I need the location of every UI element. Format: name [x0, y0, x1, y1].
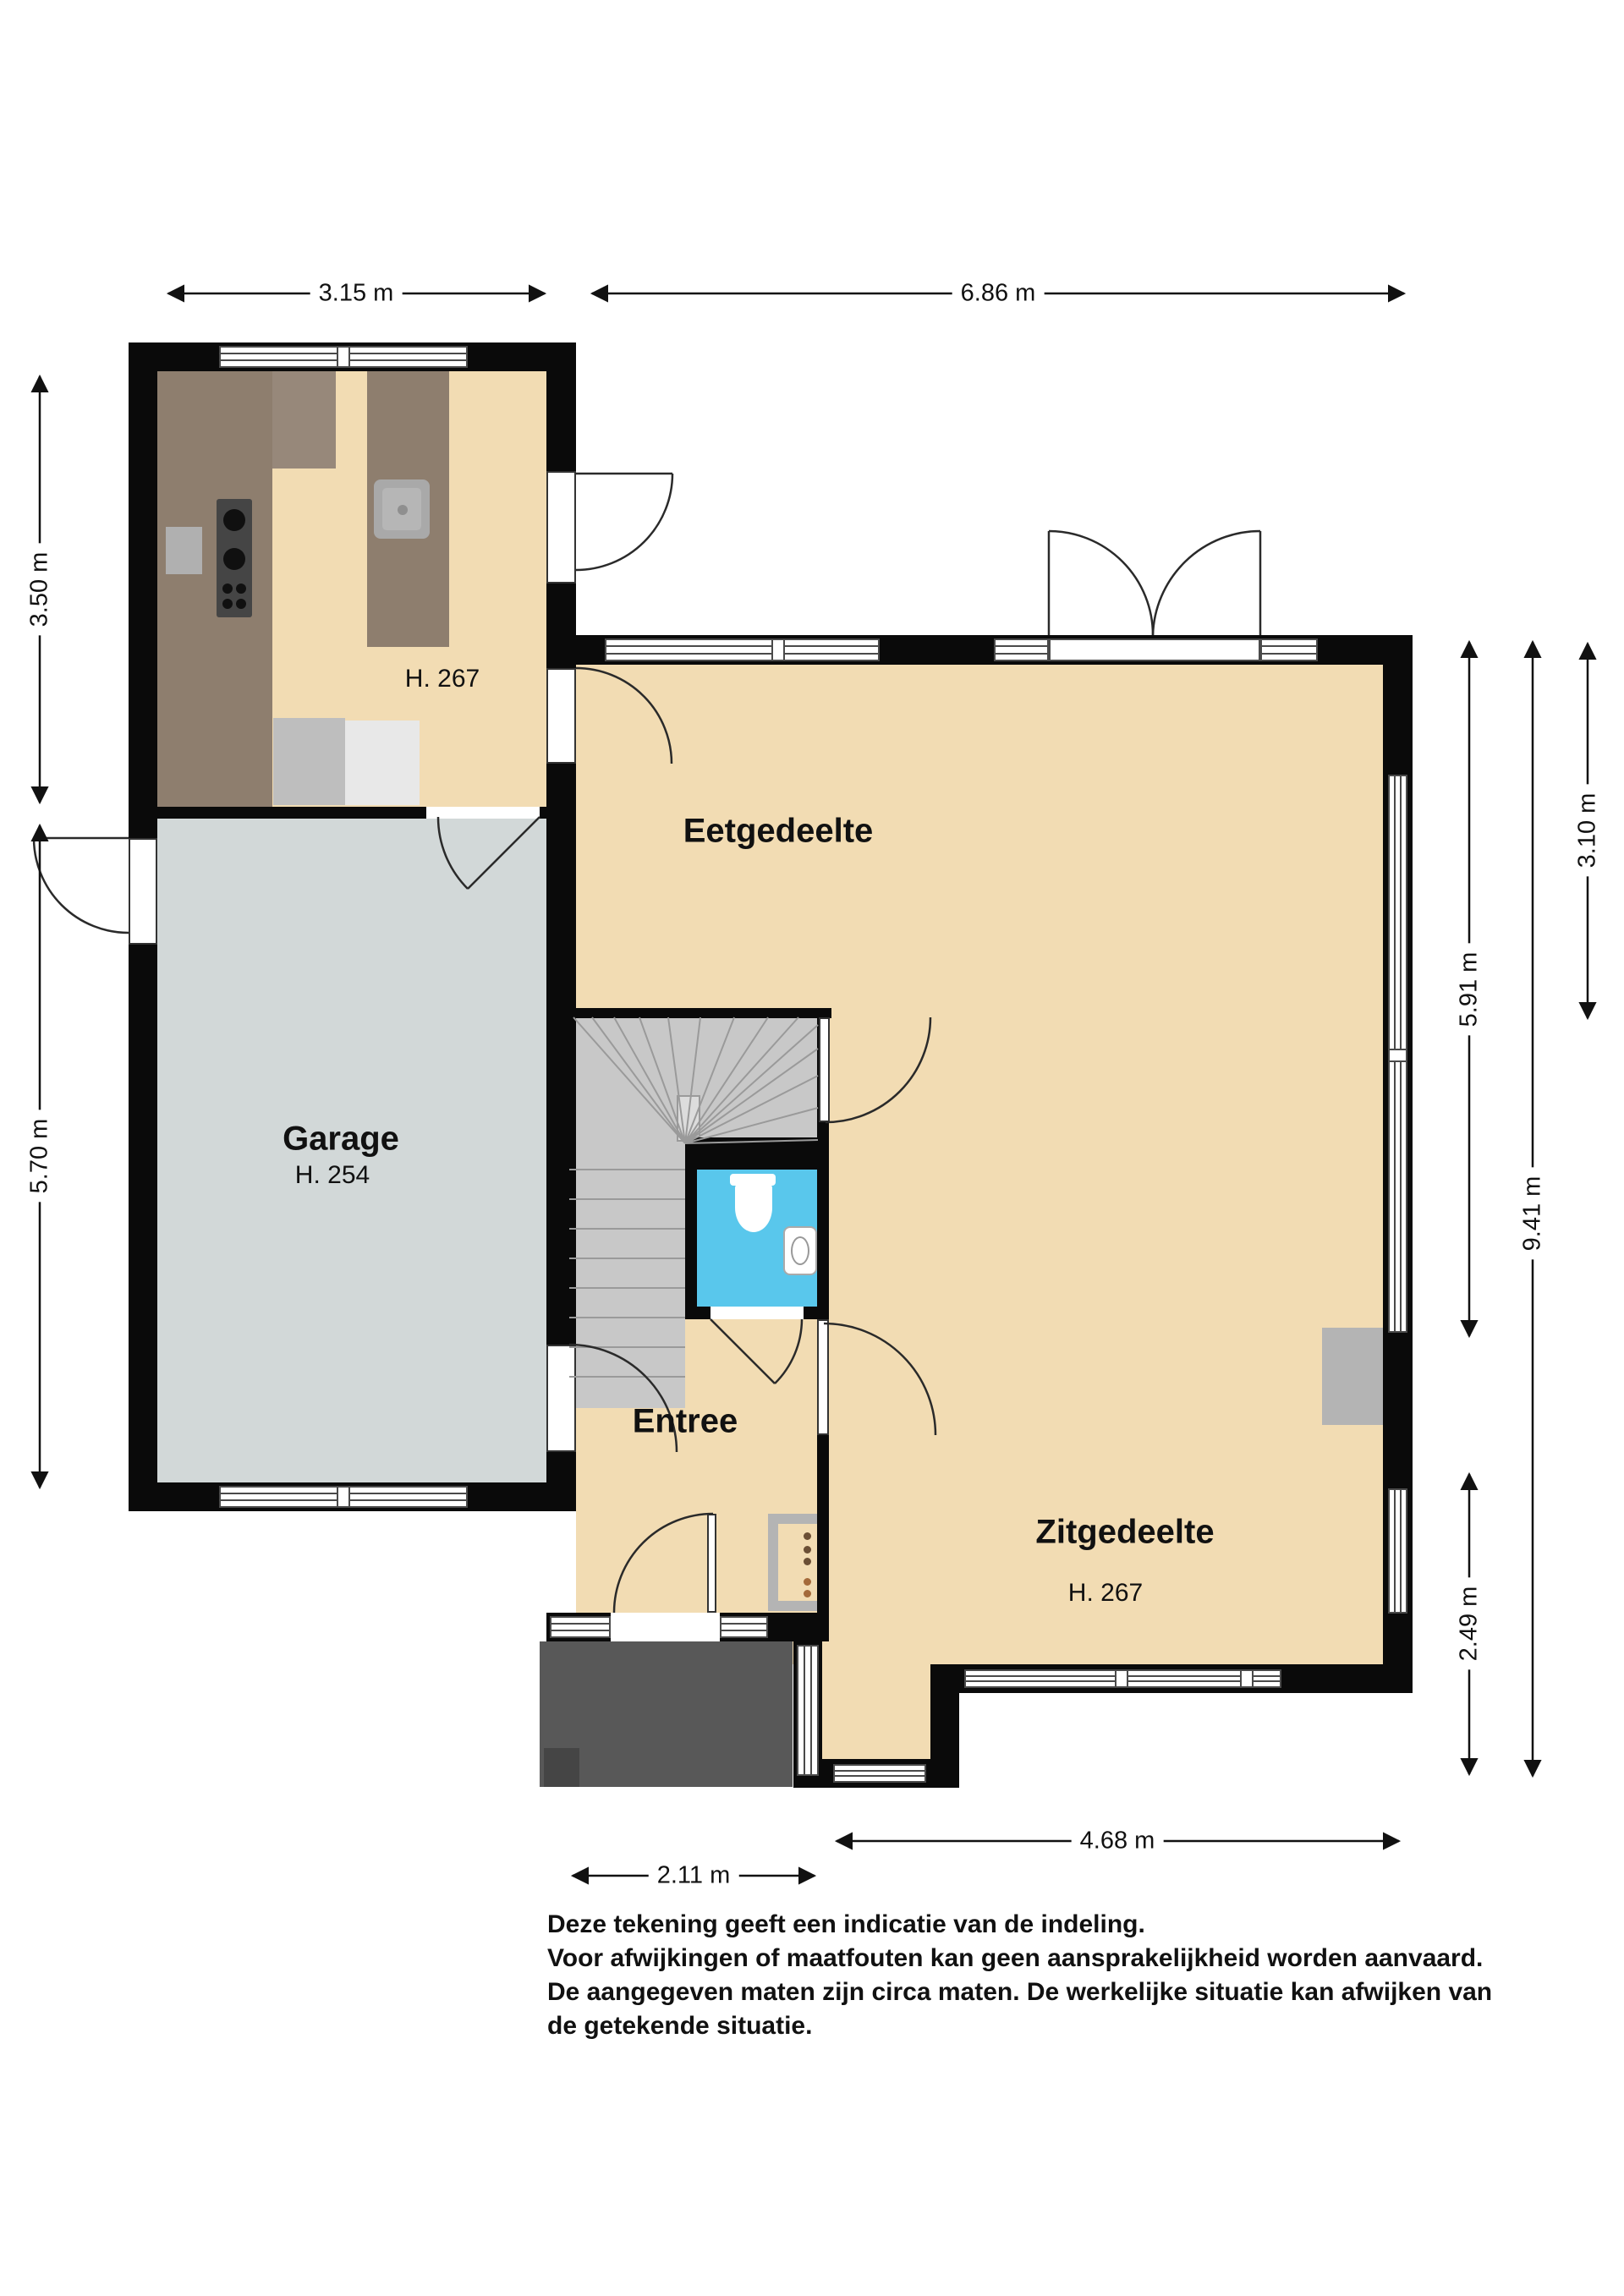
- floor-plan: 3.15 m 6.86 m 3.50 m 5.70 m 5.91 m 9.41 …: [0, 0, 1624, 2296]
- toilet-door-opening: [710, 1307, 804, 1319]
- meter-cupboard: [768, 1514, 817, 1611]
- dim-label-bottom-right: 4.68 m: [1072, 1826, 1164, 1857]
- dim-label-right-inner: 5.91 m: [1454, 944, 1485, 1036]
- dim-label-top-right: 6.86 m: [952, 278, 1045, 310]
- stove: [217, 499, 252, 617]
- window-dining-top-3: [1260, 638, 1318, 661]
- stairs-newel: [677, 1095, 700, 1142]
- wall-entree-right: [817, 1435, 829, 1613]
- kitchen-exterior-door-arc: [576, 474, 672, 570]
- kitchen-counter-left: [157, 371, 272, 807]
- dim-label-right-outer: 3.10 m: [1572, 785, 1604, 877]
- window-entree-bottom-2: [720, 1616, 768, 1638]
- kitchen-side-table: [166, 527, 202, 574]
- dim-label-top-left: 3.15 m: [310, 278, 403, 310]
- stairs-flight: [569, 1140, 685, 1408]
- disclaimer-text: Deze tekening geeft een indicatie van de…: [547, 1908, 1495, 2043]
- garage-side-door-opening: [129, 838, 157, 945]
- kitchen-dining-door-opening: [546, 668, 576, 764]
- dining-room-label: Eetgedeelte: [683, 813, 874, 851]
- dim-label-right-lower: 2.49 m: [1454, 1578, 1485, 1670]
- kitchen-height-label: H. 267: [405, 665, 480, 693]
- window-right-sitting: [1388, 1488, 1407, 1614]
- porch-doormat: [544, 1748, 579, 1787]
- hall-door-leaf: [819, 1017, 830, 1122]
- disclaimer-line-1: Deze tekening geeft een indicatie van de…: [547, 1908, 1495, 1942]
- window-mullion: [337, 1486, 350, 1508]
- entree-sitting-door-leaf: [817, 1319, 829, 1435]
- wall-stairs-top: [546, 1008, 831, 1018]
- french-door-opening: [1049, 638, 1260, 661]
- window-entree-bottom-1: [550, 1616, 611, 1638]
- disclaimer-line-3: De aangegeven maten zijn circa maten. De…: [547, 1975, 1495, 2009]
- entree-label: Entree: [633, 1403, 738, 1441]
- garage-height-label: H. 254: [295, 1161, 370, 1190]
- window-mullion: [1115, 1669, 1128, 1688]
- kitchen-appliance-1: [273, 718, 345, 805]
- garage-side-door-arc: [34, 838, 129, 933]
- sitting-room-height-label: H. 267: [1068, 1579, 1143, 1608]
- dim-label-right-middle: 9.41 m: [1517, 1168, 1549, 1260]
- toilet-sink: [783, 1226, 817, 1275]
- radiator: [1322, 1328, 1383, 1425]
- disclaimer-line-2: Voor afwijkingen of maatfouten kan geen …: [547, 1942, 1495, 1975]
- french-door-arcs: [1049, 531, 1260, 635]
- window-mullion: [1240, 1669, 1254, 1688]
- front-door-leaf: [707, 1514, 716, 1613]
- window-mullion: [771, 638, 785, 661]
- toilet-bowl: [735, 1183, 772, 1232]
- front-door-opening: [611, 1613, 720, 1641]
- garage-entree-door-opening: [546, 1345, 576, 1452]
- kitchen-exterior-door-opening: [546, 471, 576, 584]
- disclaimer-line-4: de getekende situatie.: [547, 2009, 1495, 2043]
- island-sink: [374, 479, 430, 539]
- dim-label-left-upper: 3.50 m: [25, 544, 56, 636]
- kitchen-counter-top: [272, 371, 336, 469]
- window-mullion: [337, 346, 350, 368]
- kitchen-garage-door-opening: [426, 807, 540, 819]
- garage-label: Garage: [283, 1121, 399, 1159]
- sitting-room-label: Zitgedeelte: [1035, 1514, 1214, 1552]
- window-dining-top-2: [994, 638, 1049, 661]
- window-mullion: [1388, 1049, 1407, 1062]
- dim-label-bottom-left: 2.11 m: [649, 1860, 739, 1892]
- bay-floor: [822, 1641, 930, 1759]
- dim-label-left-lower: 5.70 m: [25, 1110, 56, 1203]
- window-bay-bottom: [833, 1764, 926, 1783]
- kitchen-appliance-2: [345, 721, 420, 805]
- window-bay-left: [797, 1645, 819, 1776]
- window-dining-top-1: [605, 638, 880, 661]
